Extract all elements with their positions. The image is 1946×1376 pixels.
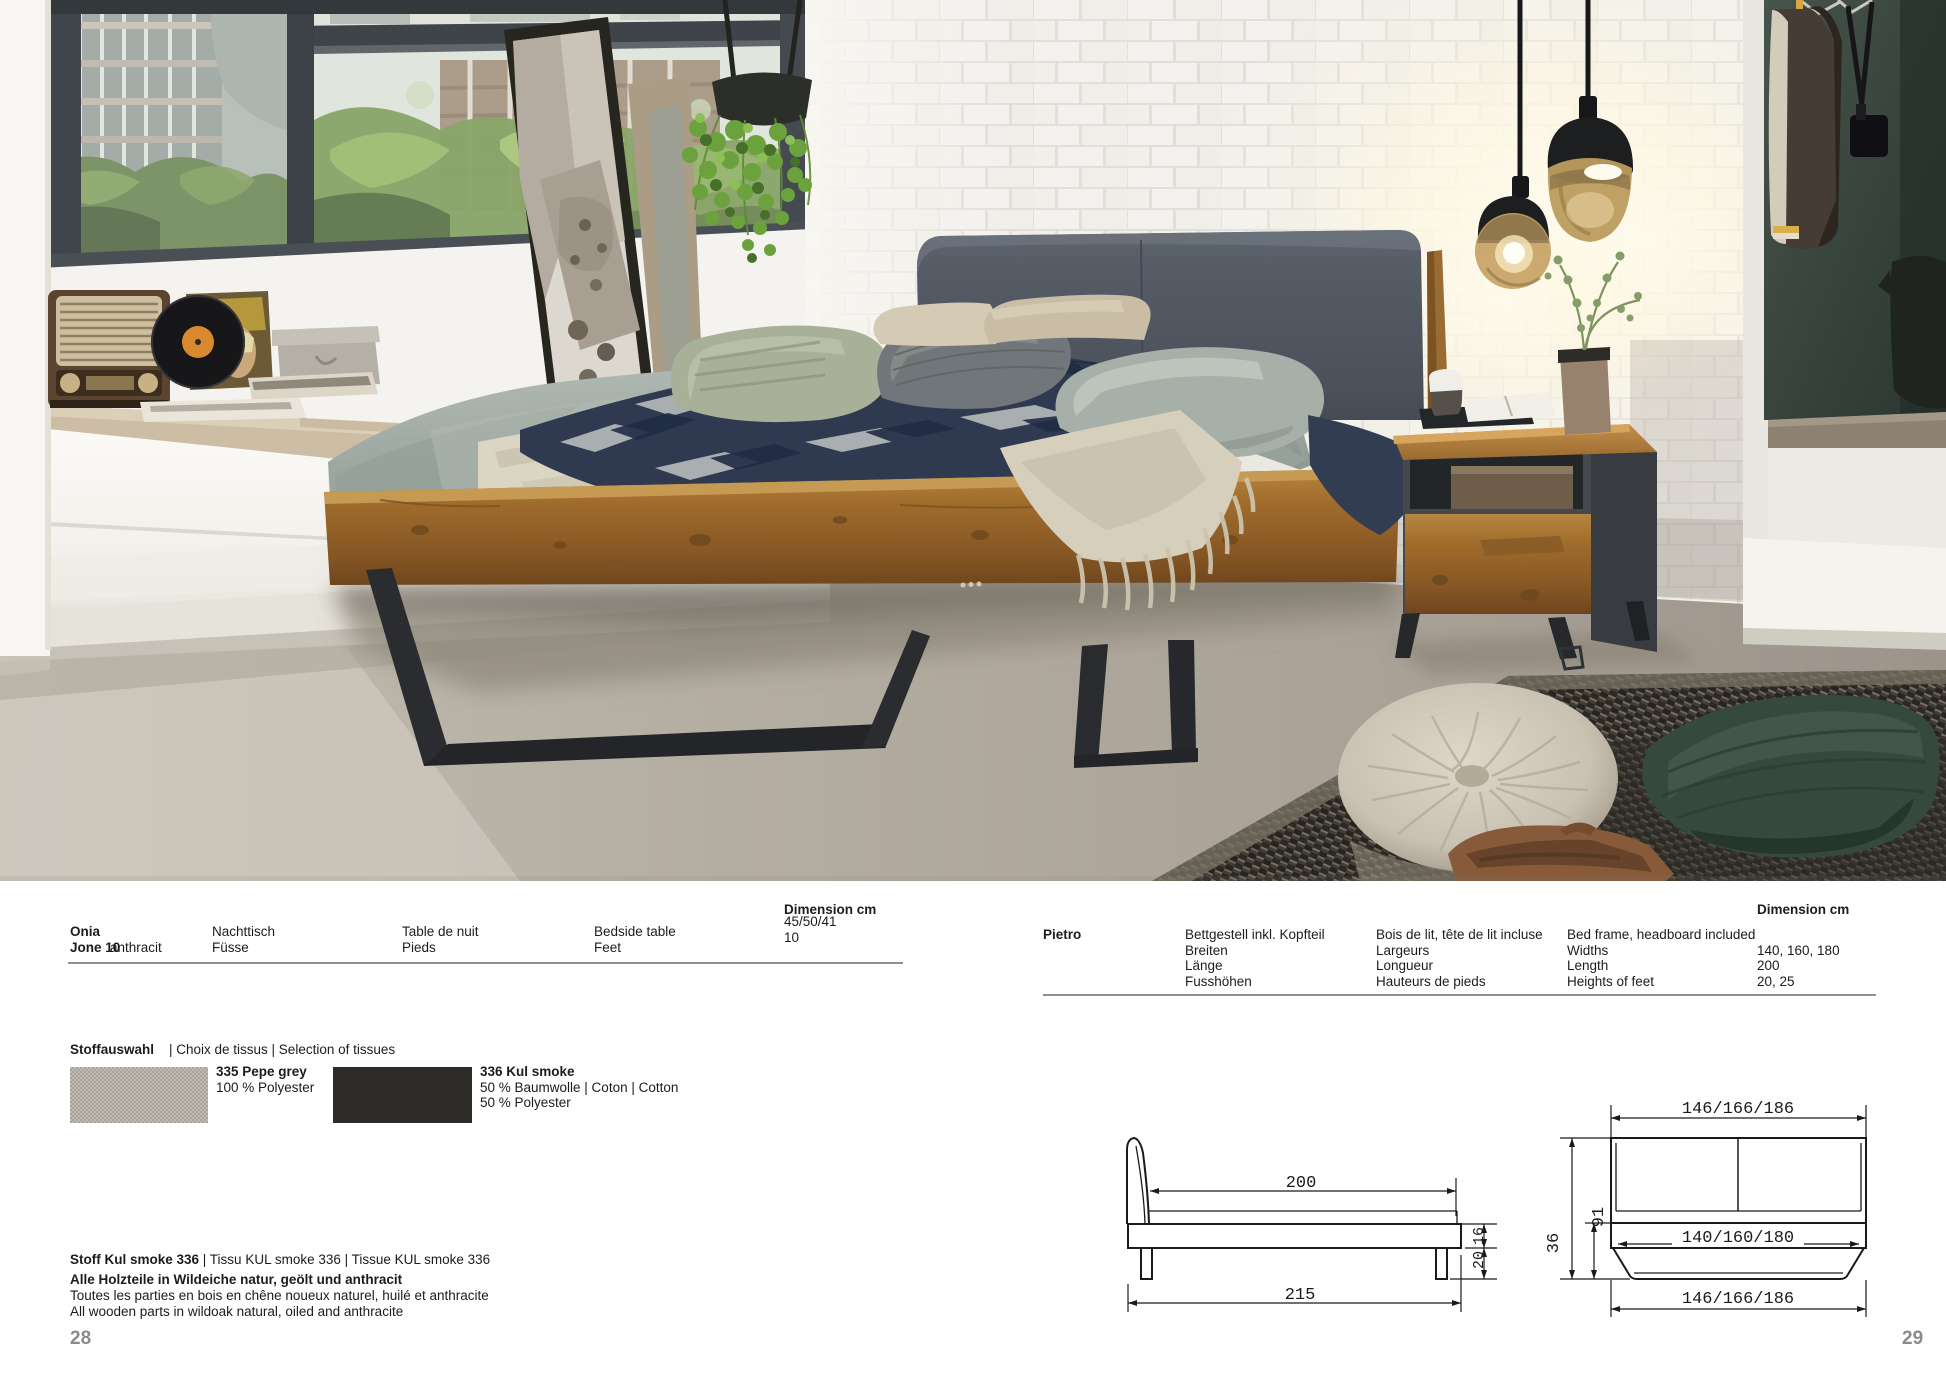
svg-text:140/160/180: 140/160/180 [1682,1229,1794,1248]
svg-text:200: 200 [1286,1174,1317,1193]
svg-text:146/166/186: 146/166/186 [1682,1290,1794,1309]
svg-text:16: 16 [1471,1227,1488,1245]
svg-text:20: 20 [1471,1251,1488,1269]
svg-text:146/166/186: 146/166/186 [1682,1100,1794,1119]
svg-text:36: 36 [1545,1233,1564,1253]
svg-text:91: 91 [1590,1207,1609,1227]
svg-text:215: 215 [1285,1286,1316,1305]
